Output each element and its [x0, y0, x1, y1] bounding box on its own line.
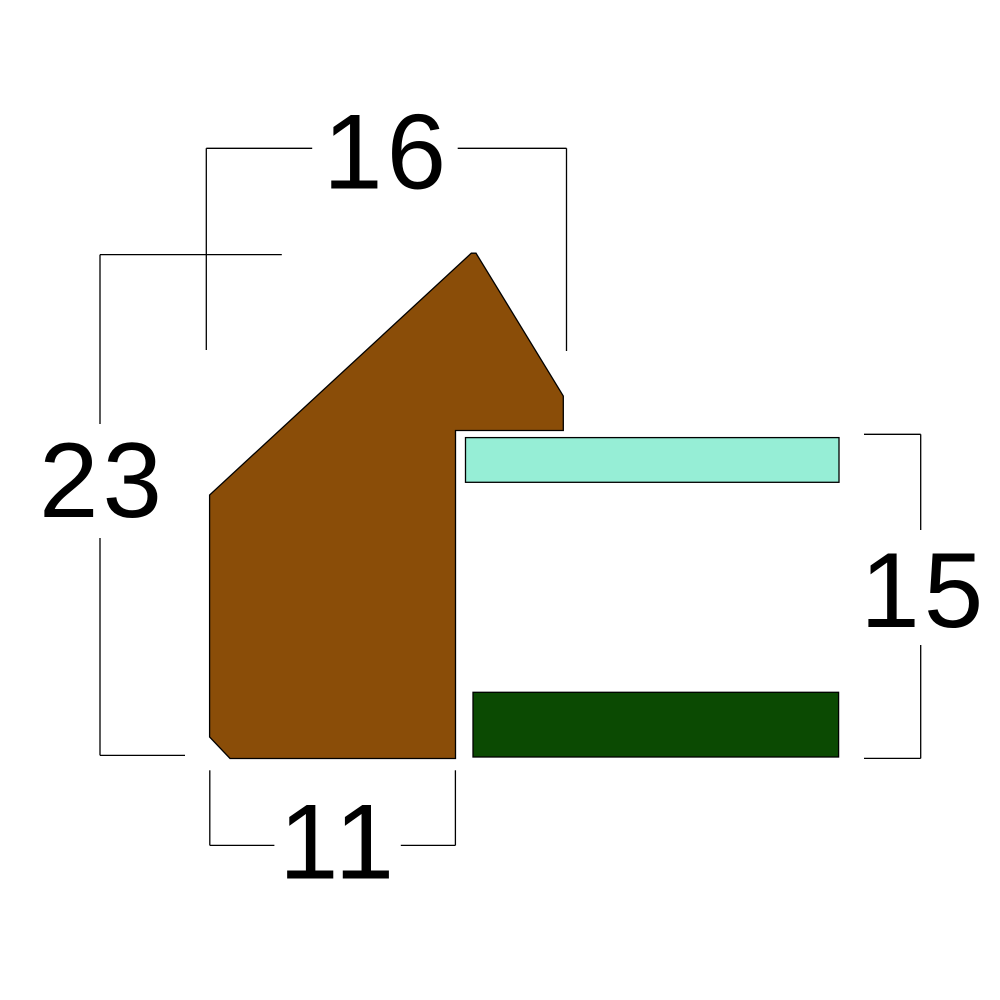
svg-text:16: 16	[323, 92, 450, 212]
svg-text:11: 11	[279, 782, 398, 902]
svg-text:23: 23	[39, 420, 166, 540]
svg-text:15: 15	[860, 530, 987, 650]
